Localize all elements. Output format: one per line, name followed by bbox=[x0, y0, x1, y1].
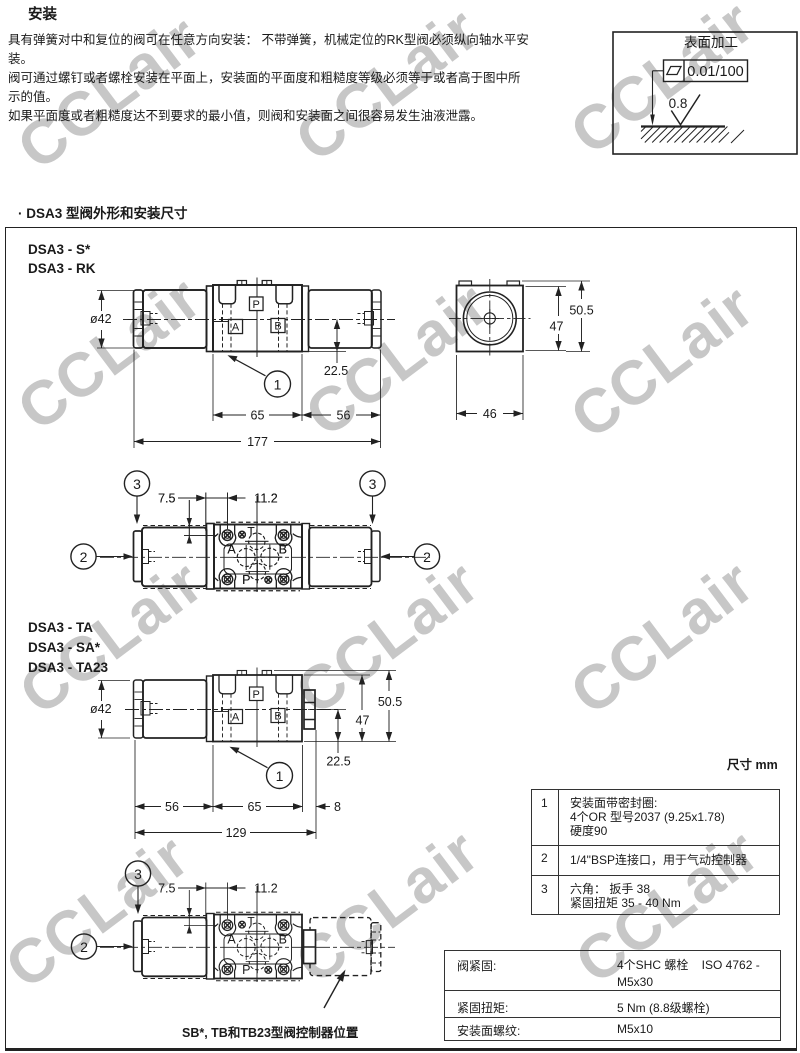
svg-text:50.5: 50.5 bbox=[378, 695, 402, 709]
svg-text:177: 177 bbox=[247, 435, 268, 449]
svg-text:表面加工: 表面加工 bbox=[684, 35, 738, 50]
svg-text:0.01/100: 0.01/100 bbox=[687, 64, 743, 80]
svg-text:3: 3 bbox=[369, 476, 377, 492]
svg-text:47: 47 bbox=[356, 714, 370, 728]
svg-text:1: 1 bbox=[276, 768, 284, 784]
svg-text:65: 65 bbox=[248, 800, 262, 814]
svg-text:47: 47 bbox=[550, 320, 564, 334]
svg-text:2: 2 bbox=[80, 939, 88, 955]
svg-text:2: 2 bbox=[80, 549, 88, 565]
svg-text:1: 1 bbox=[274, 376, 282, 392]
svg-text:46: 46 bbox=[483, 407, 497, 421]
svg-text:22.5: 22.5 bbox=[326, 755, 350, 769]
svg-text:50.5: 50.5 bbox=[569, 303, 593, 317]
svg-text:8: 8 bbox=[334, 800, 341, 814]
svg-text:3: 3 bbox=[134, 866, 142, 882]
svg-text:65: 65 bbox=[251, 409, 265, 423]
svg-text:ø42: ø42 bbox=[90, 312, 112, 326]
svg-text:22.5: 22.5 bbox=[324, 364, 348, 378]
svg-text:3: 3 bbox=[133, 476, 141, 492]
svg-text:0.8: 0.8 bbox=[669, 96, 688, 111]
svg-text:ø42: ø42 bbox=[90, 702, 112, 716]
svg-text:56: 56 bbox=[165, 800, 179, 814]
svg-text:2: 2 bbox=[423, 549, 431, 565]
svg-text:129: 129 bbox=[226, 826, 247, 840]
svg-text:56: 56 bbox=[337, 409, 351, 423]
